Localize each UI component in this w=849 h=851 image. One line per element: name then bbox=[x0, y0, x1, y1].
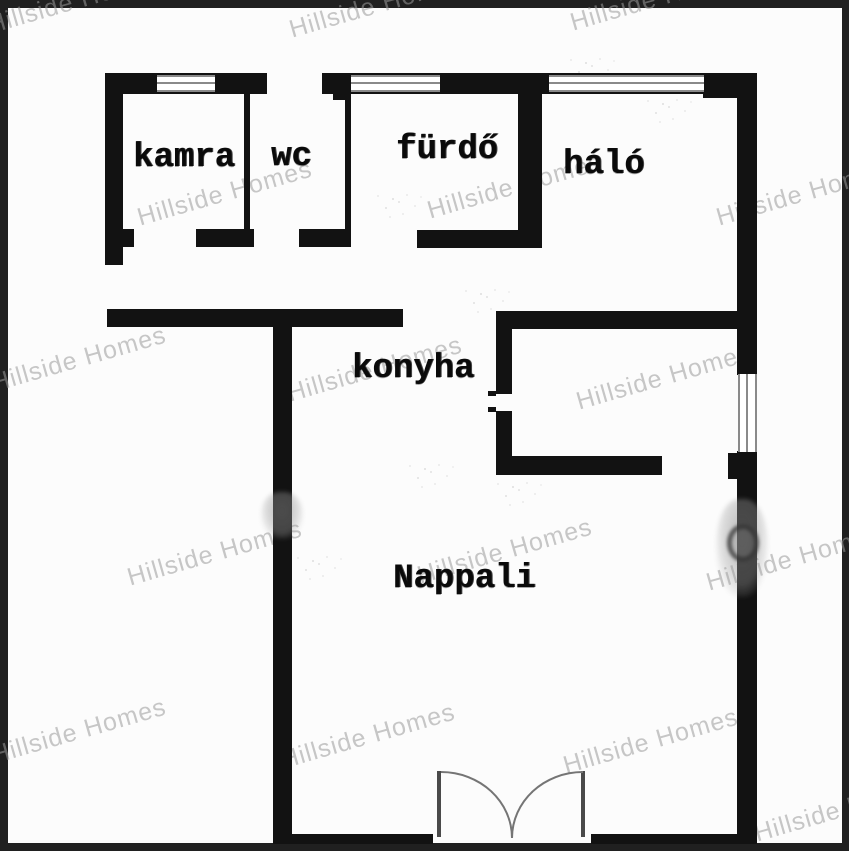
noise-speckle bbox=[312, 560, 314, 562]
room-label-konyha: konyha bbox=[352, 352, 474, 386]
floor-plan-image: Hillside Homes Hillside Homes Hillside H… bbox=[0, 0, 849, 851]
wall-kamra-bottom bbox=[196, 229, 254, 247]
noise-speckle bbox=[662, 103, 664, 105]
blurred-smudge-left bbox=[261, 492, 303, 539]
room-label-halo: háló bbox=[563, 148, 645, 182]
wall-smallroom-stub bbox=[728, 453, 743, 479]
noise-speckle bbox=[585, 62, 587, 64]
window-halo bbox=[549, 75, 704, 92]
blurred-smudge-ring bbox=[727, 524, 759, 562]
exterior-wall-left bbox=[105, 73, 123, 265]
room-label-kamra: kamra bbox=[133, 141, 235, 175]
room-label-wc: wc bbox=[271, 140, 312, 174]
noise-speckle bbox=[480, 293, 482, 295]
window-right-wall bbox=[738, 374, 757, 452]
window-wc-furdo bbox=[351, 75, 440, 92]
door-jamb-tick bbox=[488, 407, 496, 412]
room-label-furdo: fürdő bbox=[396, 133, 498, 167]
noise-speckle bbox=[392, 198, 394, 200]
wall-smallroom-bottom bbox=[496, 456, 662, 475]
wall-divider-furdo-halo bbox=[518, 88, 542, 248]
wall-hall-bottom-left bbox=[107, 309, 403, 327]
exterior-wall-left-notch bbox=[122, 229, 134, 247]
wall-smallroom-left-upper bbox=[496, 311, 512, 394]
wall-nappali-left bbox=[273, 309, 292, 844]
exterior-wall-right-upper bbox=[737, 73, 757, 375]
noise-speckle bbox=[424, 468, 426, 470]
exterior-wall-bottom-right bbox=[591, 834, 757, 844]
wall-divider-kamra-wc bbox=[244, 90, 250, 232]
wall-hall-bottom-right bbox=[496, 311, 743, 329]
wall-wc-bottom bbox=[299, 229, 351, 247]
room-label-nappali: Nappali bbox=[393, 562, 536, 596]
door-jamb-tick bbox=[488, 391, 496, 396]
wall-divider-wc-furdo bbox=[345, 93, 351, 231]
noise-speckle bbox=[512, 486, 514, 488]
exterior-wall-bottom-left bbox=[273, 834, 433, 844]
window-kamra bbox=[157, 75, 215, 92]
